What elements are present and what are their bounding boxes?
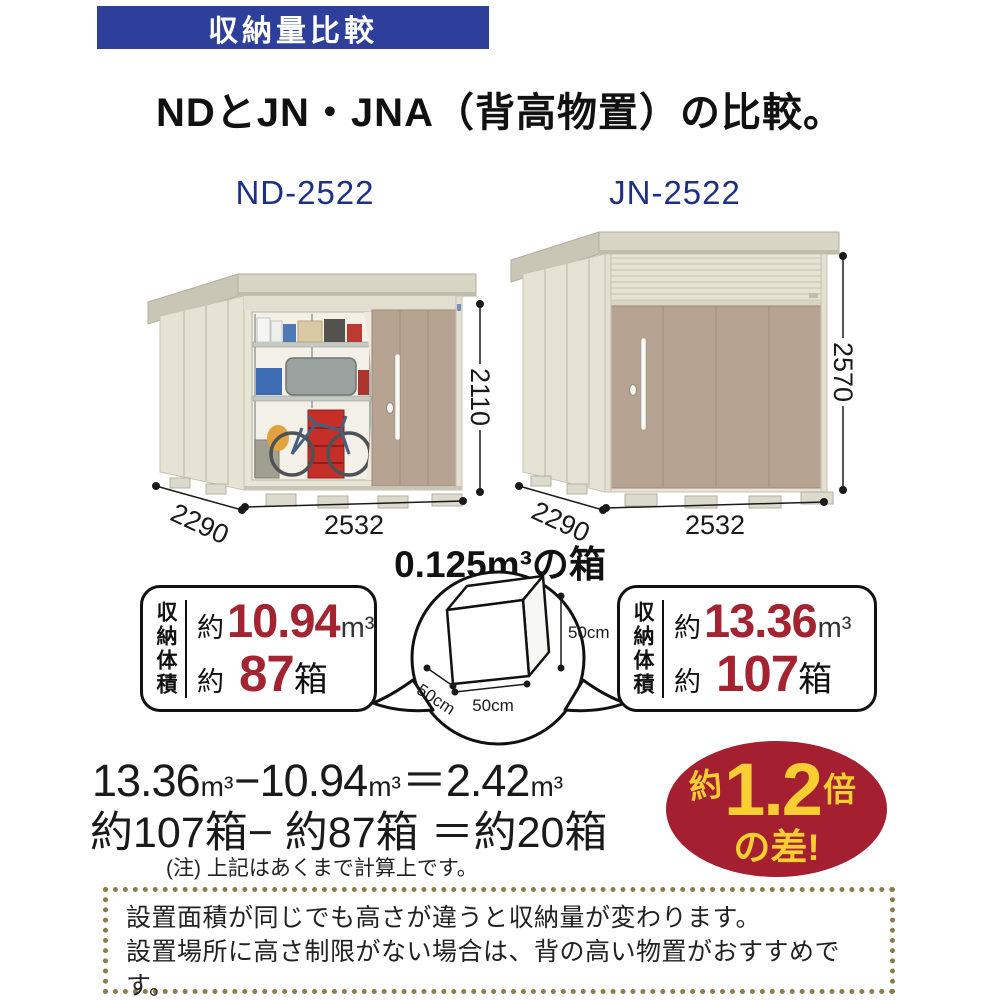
door-handle [395,354,400,440]
volume-unit: m³ [818,613,852,644]
banner: 収納量比較 [97,6,489,49]
shed-left-door [372,310,456,486]
cube-height-label: 50cm [568,623,610,642]
volume-bubble: 50cm 50cm 50cm [365,556,635,752]
shutter [611,258,821,306]
height-dim-label-right: 2570 [828,342,858,402]
badge-row1: 約 1.2 倍 [689,753,856,827]
shed-right-side-wall [523,254,605,492]
volume-row: 約 10.94 m³ [197,596,374,647]
footer-line-2: 設置場所に高さ制限がない場合は、背の高い物置がおすすめです。 [126,935,874,1000]
badge-approx: 約 [687,767,724,804]
footer-note-box: 設置面積が同じでも高さが違うと収納量が変わります。 設置場所に高さ制限がない場合… [103,887,895,994]
volume-approx: 約 [197,614,224,643]
boxes-approx: 約 [197,668,224,697]
volume-unit: m³ [341,613,375,644]
stat-rows-nd: 約 10.94 m³ 約 87 箱 [197,596,374,702]
shed-right-door [611,306,821,488]
page-heading: NDとJN・JNA（背高物置）の比較。 [0,80,1000,138]
door-frame-strip [456,296,462,490]
badge-value: 1.2 [724,753,821,827]
stat-box-nd: 収納体積 約 10.94 m³ 約 87 箱 [140,585,377,712]
calc-line2: 約107箱− 約87箱 ＝約20箱 [90,798,607,860]
boxes-unit: 箱 [294,662,328,699]
brand-sticker [457,304,461,311]
boxes-unit: 箱 [798,662,832,699]
badge-row2: の差! [733,829,819,866]
door-lock [387,403,394,414]
cube-illustration [447,576,549,684]
banner-title: 収納量比較 [208,6,378,50]
ratio-badge: 約 1.2 倍 の差! [666,741,887,877]
volume-row: 約 13.36 m³ [674,596,851,647]
stat-label-jn: 収納体積 [632,601,653,697]
stat-rows-jn: 約 13.36 m³ 約 107 箱 [674,596,851,702]
shed-left-illustration: 2532 2290 2110 [140,258,510,550]
shed-right-illustration: 2532 2290 2570 [505,218,885,552]
width-dim-label-right: 2532 [685,510,745,540]
volume-value: 13.36 [704,596,817,647]
page-root: { "banner": { "title": "収納量比較" }, "headi… [0,0,1000,1000]
boxes-approx: 約 [674,668,701,697]
calc-note: (注) 上記はあくまで計算上です。 [166,852,478,882]
boxes-row: 約 107 箱 [674,646,851,701]
frame-strip-right [821,254,827,492]
model-label-nd: ND-2522 [145,174,465,212]
frame-strip-left [605,254,611,492]
volume-value: 10.94 [227,596,340,647]
door-lock [630,385,637,396]
footer-line-1: 設置面積が同じでも高さが違うと収納量が変わります。 [126,901,874,935]
base-edge [244,486,462,490]
badge-times: 倍 [823,773,856,806]
boxes-value: 107 [716,646,798,701]
shed-left-interior [252,312,372,480]
cube-width-label: 50cm [472,696,514,715]
boxes-value: 87 [239,646,294,701]
stat-separator [662,600,664,698]
boxes-row: 約 87 箱 [197,646,374,701]
door-handle [641,338,646,430]
volume-approx: 約 [674,614,701,643]
height-dim-label-left: 2110 [465,368,495,426]
model-label-jn: JN-2522 [515,174,835,212]
stat-separator [185,600,187,698]
stat-label-nd: 収納体積 [155,601,176,697]
shed-left-side-wall [160,296,244,490]
stat-box-jn: 収納体積 約 13.36 m³ 約 107 箱 [617,585,877,712]
